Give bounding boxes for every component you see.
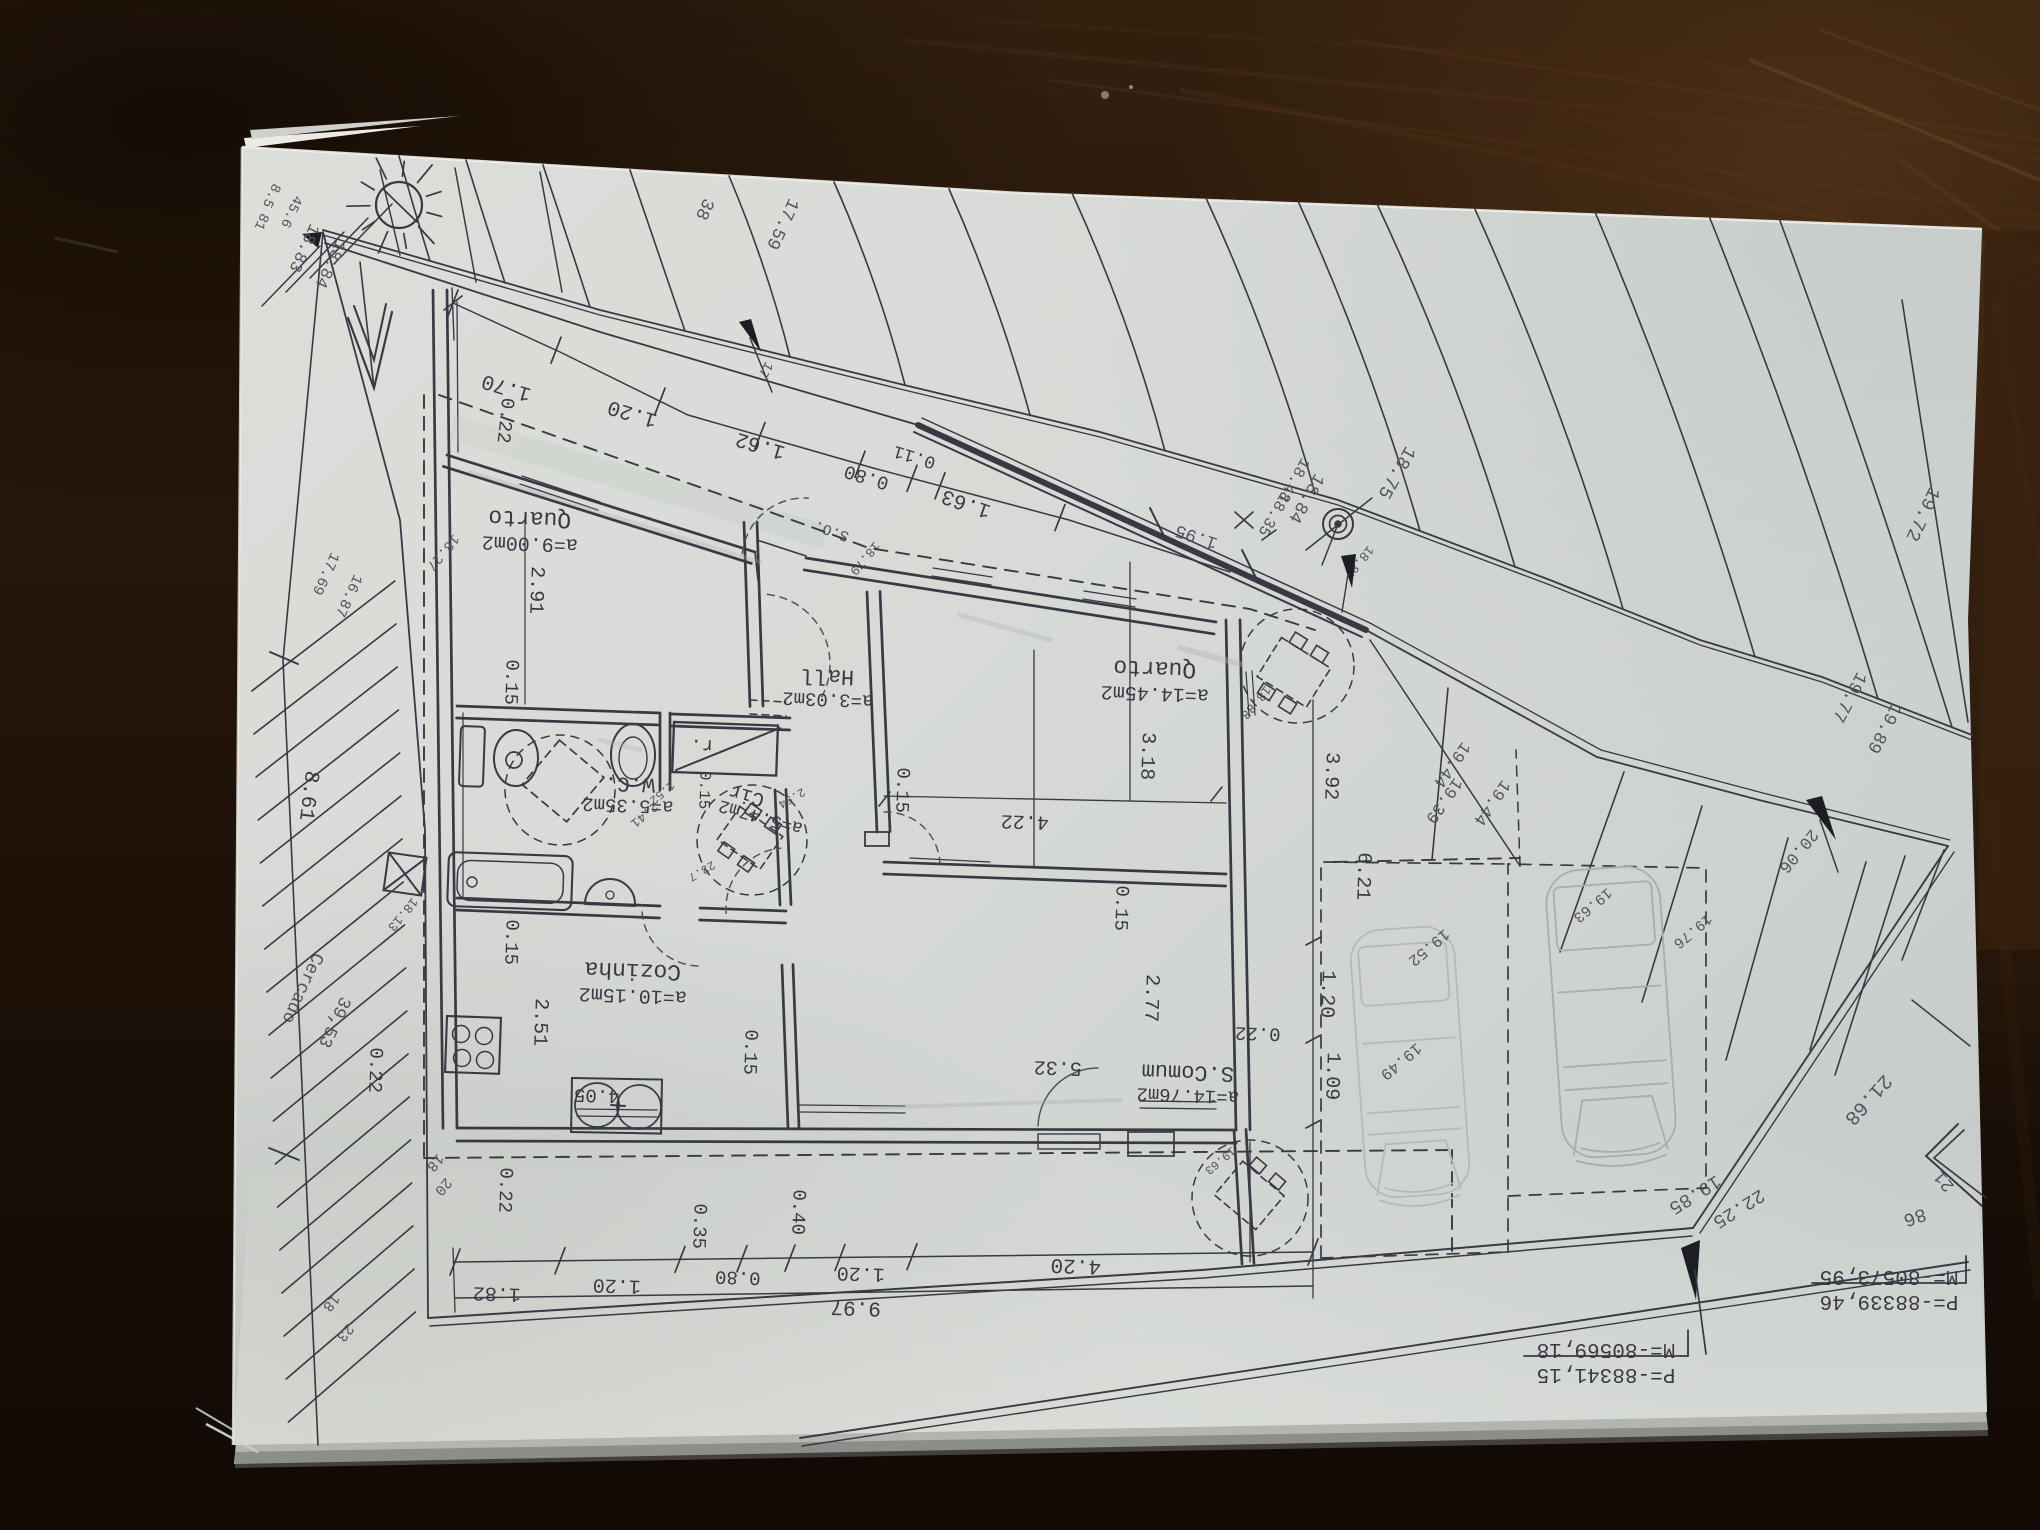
svg-text:9.97: 9.97 <box>830 1294 881 1319</box>
svg-text:0.22: 0.22 <box>363 1047 387 1093</box>
svg-text:a=14.76m2: a=14.76m2 <box>1136 1082 1239 1108</box>
svg-text:3.92: 3.92 <box>1318 752 1343 801</box>
svg-text:r.: r. <box>690 734 714 757</box>
svg-text:2.51: 2.51 <box>527 998 552 1047</box>
svg-text:0.80: 0.80 <box>715 1265 761 1289</box>
svg-text:Quarto: Quarto <box>488 504 572 533</box>
svg-text:P=-88341,15: P=-88341,15 <box>1537 1362 1676 1385</box>
svg-text:1.20: 1.20 <box>1314 970 1339 1019</box>
svg-text:4.20: 4.20 <box>1050 1252 1101 1277</box>
svg-text:0.22: 0.22 <box>493 1167 517 1213</box>
svg-text:Cozinha: Cozinha <box>584 955 682 984</box>
svg-text:0.22: 0.22 <box>1235 1021 1281 1045</box>
svg-text:0.35: 0.35 <box>687 1203 711 1249</box>
svg-text:1.20: 1.20 <box>592 1272 641 1297</box>
svg-text:Quarto: Quarto <box>1113 654 1197 683</box>
svg-text:0.40: 0.40 <box>786 1189 810 1235</box>
svg-text:0.15: 0.15 <box>694 771 713 810</box>
svg-text:3.18: 3.18 <box>1134 732 1159 781</box>
svg-text:2.77: 2.77 <box>1138 974 1163 1023</box>
svg-text:6.21: 6.21 <box>1350 852 1375 901</box>
svg-text:a=10.15m2: a=10.15m2 <box>578 981 687 1008</box>
svg-text:2.91: 2.91 <box>523 566 548 615</box>
svg-text:1.09: 1.09 <box>1319 1052 1344 1101</box>
svg-text:0.15: 0.15 <box>499 659 523 705</box>
svg-text:S.Comum: S.Comum <box>1141 1057 1234 1085</box>
svg-text:P=-88339,46: P=-88339,46 <box>1820 1289 1959 1312</box>
svg-text:4.05: 4.05 <box>574 1083 620 1107</box>
svg-text:1.20: 1.20 <box>836 1260 885 1285</box>
svg-text:5.32: 5.32 <box>1033 1054 1082 1079</box>
svg-text:0.15: 0.15 <box>738 1029 762 1075</box>
svg-text:0.15: 0.15 <box>499 919 523 965</box>
svg-text:W.C.: W.C. <box>604 770 655 795</box>
svg-text:0.15: 0.15 <box>890 767 914 813</box>
svg-text:1.82: 1.82 <box>472 1280 521 1305</box>
svg-text:a=9.00m2: a=9.00m2 <box>481 529 578 555</box>
svg-text:a=3.03m2: a=3.03m2 <box>782 686 874 711</box>
svg-text:Hall: Hall <box>801 662 855 689</box>
svg-text:4.22: 4.22 <box>1000 808 1049 833</box>
svg-text:a=14.45m2: a=14.45m2 <box>1100 679 1209 706</box>
svg-text:0.15: 0.15 <box>1109 885 1133 931</box>
